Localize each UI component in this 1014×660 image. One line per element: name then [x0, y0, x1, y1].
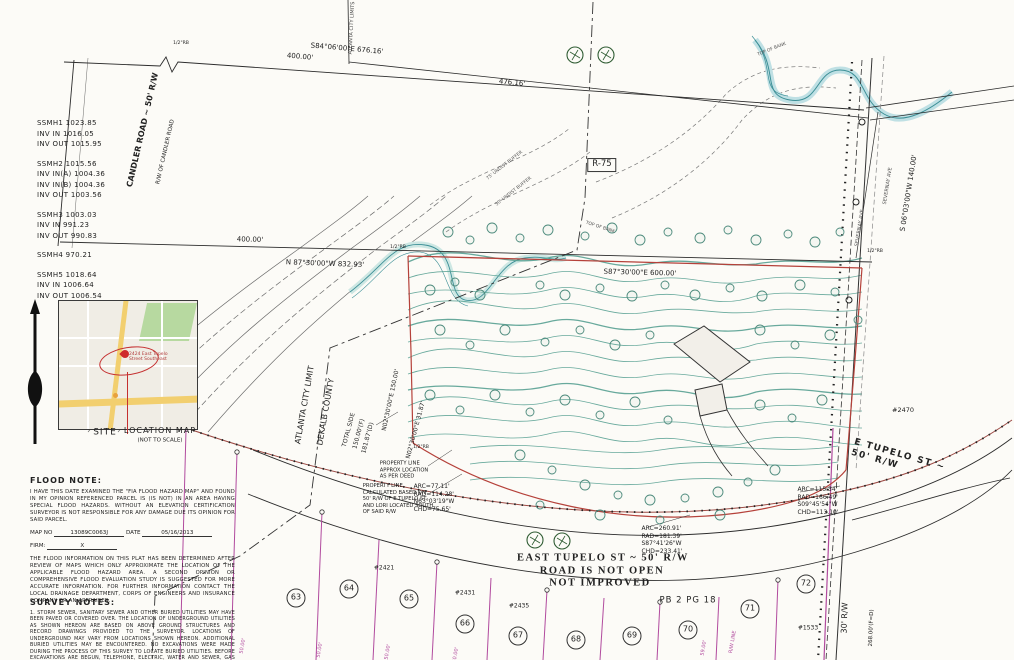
site-leader-line: [127, 372, 128, 434]
tree-symbol: [425, 285, 435, 295]
tree-symbol: [784, 230, 792, 238]
hatched-tree-symbol: [598, 47, 614, 63]
lot-number-65: 65: [400, 590, 419, 609]
hatched-tree-symbol: [527, 532, 543, 548]
survey-notes-title: SURVEY NOTES:: [30, 598, 235, 607]
tree-symbol: [695, 233, 705, 243]
survey-notes-body: 1. STORM SEWER, SANITARY SEWER AND OTHER…: [30, 611, 235, 660]
flood-note-title: FLOOD NOTE:: [30, 476, 235, 485]
tree-symbol: [425, 390, 435, 400]
survey-notes: SURVEY NOTES: 1. STORM SEWER, SANITARY S…: [30, 598, 235, 660]
building-footprint: [674, 326, 768, 476]
parcel-contour-lines: [408, 253, 862, 485]
tree-symbol: [560, 395, 570, 405]
tree-symbol: [690, 290, 700, 300]
tree-symbol: [755, 325, 765, 335]
hatched-tree-symbol: [567, 47, 583, 63]
flood-note-para1: I HAVE THIS DATE EXAMINED THE "FIA FLOOD…: [30, 489, 235, 524]
sanitary-manhole-notes: SSMH1 1023.85 INV IN 1016.05 INV OUT 101…: [37, 118, 105, 310]
manhole-note-block: SSMH5 1018.64 INV IN 1006.64 INV OUT 100…: [37, 270, 105, 302]
tree-symbols: [425, 47, 862, 549]
manhole-symbols: [846, 119, 865, 303]
tree-symbol: [770, 465, 780, 475]
tree-symbol: [645, 495, 655, 505]
location-map-inset: 2424 East Tupelo Street Southeast: [58, 300, 198, 430]
tree-symbol: [435, 325, 445, 335]
tree-symbol: [744, 478, 752, 486]
tree-symbol: [595, 510, 605, 520]
tree-symbol: [614, 491, 622, 499]
tree-symbol: [487, 223, 497, 233]
tree-symbol: [646, 331, 654, 339]
tree-symbol: [475, 290, 485, 300]
lot-number-71: 71: [741, 600, 760, 619]
tree-symbol: [791, 341, 799, 349]
hatched-tree-symbol: [554, 533, 570, 549]
firm-label: FIRM:: [30, 543, 45, 549]
tree-symbol: [610, 340, 620, 350]
tree-symbol: [543, 225, 553, 235]
tree-symbol: [443, 227, 453, 237]
tree-symbol: [755, 400, 765, 410]
tree-symbol: [516, 234, 524, 242]
tree-symbol: [526, 408, 534, 416]
lot-number-72: 72: [797, 575, 816, 594]
map-no-value: 13089C0063J: [54, 530, 124, 537]
firm-value: X: [47, 543, 117, 550]
lot-number-67: 67: [509, 627, 528, 646]
date-label: DATE: [126, 530, 141, 536]
manhole-note-block: SSMH1 1023.85 INV IN 1016.05 INV OUT 101…: [37, 118, 105, 150]
tree-symbol: [681, 494, 689, 502]
tree-symbol: [536, 281, 544, 289]
tree-symbol: [661, 281, 669, 289]
tree-symbol: [596, 284, 604, 292]
tree-symbol: [664, 228, 672, 236]
tree-symbol: [607, 223, 617, 233]
lot-number-69: 69: [623, 627, 642, 646]
east-tupelo-road-arcs: [186, 420, 1012, 580]
flood-note: FLOOD NOTE: I HAVE THIS DATE EXAMINED TH…: [30, 476, 235, 611]
street-corridor-right: [818, 56, 884, 660]
tree-symbol: [656, 516, 664, 524]
tree-symbol: [757, 291, 767, 301]
tree-symbol: [596, 411, 604, 419]
tree-symbol: [664, 416, 672, 424]
tree-symbol: [490, 390, 500, 400]
tree-symbol: [726, 284, 734, 292]
tree-symbol: [548, 466, 556, 474]
tree-symbol: [810, 237, 820, 247]
tree-symbol: [817, 395, 827, 405]
boundary-lines: [58, 0, 1014, 262]
lot-number-63: 63: [287, 589, 306, 608]
map-pin-label: 2424 East Tupelo Street Southeast: [129, 352, 168, 363]
lot-number-66: 66: [456, 615, 475, 634]
tree-symbol: [581, 232, 589, 240]
tree-symbol: [715, 510, 725, 520]
survey-plat-sheet: SSMH1 1023.85 INV IN 1016.05 INV OUT 101…: [0, 0, 1014, 660]
tree-symbol: [580, 480, 590, 490]
tree-symbol: [515, 450, 525, 460]
north-arrow-icon: [24, 296, 46, 448]
tree-symbol: [635, 235, 645, 245]
tree-symbol: [724, 226, 732, 234]
tree-symbol: [854, 316, 862, 324]
flood-map-row: MAP NO 13089C0063J DATE 05/16/2013: [30, 530, 235, 537]
tree-symbol: [630, 397, 640, 407]
tree-symbol: [456, 406, 464, 414]
tree-symbol: [751, 235, 761, 245]
manhole-note-block: SSMH2 1015.56 INV IN(A) 1004.36 INV IN(B…: [37, 159, 105, 201]
tree-symbol: [576, 326, 584, 334]
tree-symbol: [500, 325, 510, 335]
lot-corner-pins: [235, 450, 780, 604]
tree-symbol: [536, 501, 544, 509]
map-road-major: [58, 395, 198, 407]
tree-symbol: [795, 280, 805, 290]
tree-symbol: [788, 414, 796, 422]
flood-firm-row: FIRM: X: [30, 543, 235, 550]
tree-symbol: [825, 330, 835, 340]
lot-number-64: 64: [340, 580, 359, 599]
tree-symbol: [541, 338, 549, 346]
tree-symbol: [627, 291, 637, 301]
manhole-note-block: SSMH3 1003.03 INV IN 991.23 INV OUT 990.…: [37, 210, 105, 242]
map-road: [59, 337, 197, 339]
tree-symbol: [451, 278, 459, 286]
manhole-note-block: SSMH4 970.21: [37, 250, 105, 261]
map-no-label: MAP NO: [30, 530, 52, 536]
tree-symbol: [836, 228, 844, 236]
tree-symbol: [466, 236, 474, 244]
tree-symbol: [831, 288, 839, 296]
lot-number-68: 68: [567, 631, 586, 650]
park-area: [139, 303, 197, 341]
poi-icon: [113, 393, 118, 398]
tree-symbol: [713, 487, 723, 497]
tree-symbol: [466, 341, 474, 349]
tree-symbol: [560, 290, 570, 300]
date-value: 05/16/2013: [142, 530, 212, 537]
lot-number-70: 70: [679, 621, 698, 640]
